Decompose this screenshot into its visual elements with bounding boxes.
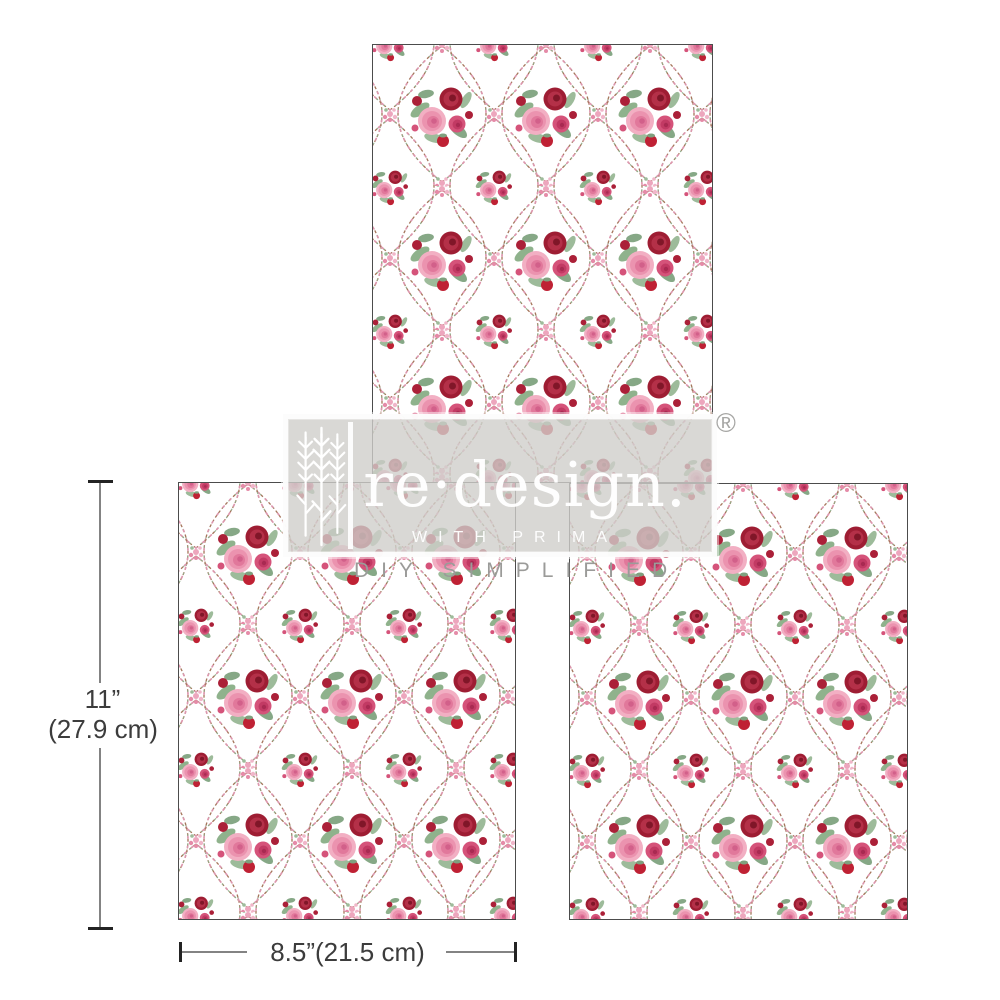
brand-tagline: DIY SIMPLIFIED	[354, 559, 674, 583]
height-dim-inches-label: 11”	[40, 685, 165, 713]
lavender-sprigs-icon	[291, 422, 353, 549]
product-image: 11” (27.9 cm) 8.5”(21.5 cm)	[0, 0, 1000, 1000]
width-dim-right-cap	[514, 942, 517, 962]
width-dim-line-left	[182, 951, 247, 953]
width-dim-line-right	[446, 951, 514, 953]
height-dim-line-upper	[99, 483, 101, 683]
width-dim-label: 8.5”(21.5 cm)	[250, 938, 445, 966]
height-dim-line-lower	[99, 748, 101, 927]
registered-trademark-symbol: ®	[716, 410, 736, 437]
brand-watermark: re·design. WITH PRIMA	[283, 414, 717, 557]
brand-subtitle: WITH PRIMA	[358, 529, 672, 547]
height-dim-bottom-cap	[88, 927, 113, 930]
height-dim-metric-label: (27.9 cm)	[28, 715, 178, 743]
brand-logo-text: re·design.	[358, 453, 692, 517]
